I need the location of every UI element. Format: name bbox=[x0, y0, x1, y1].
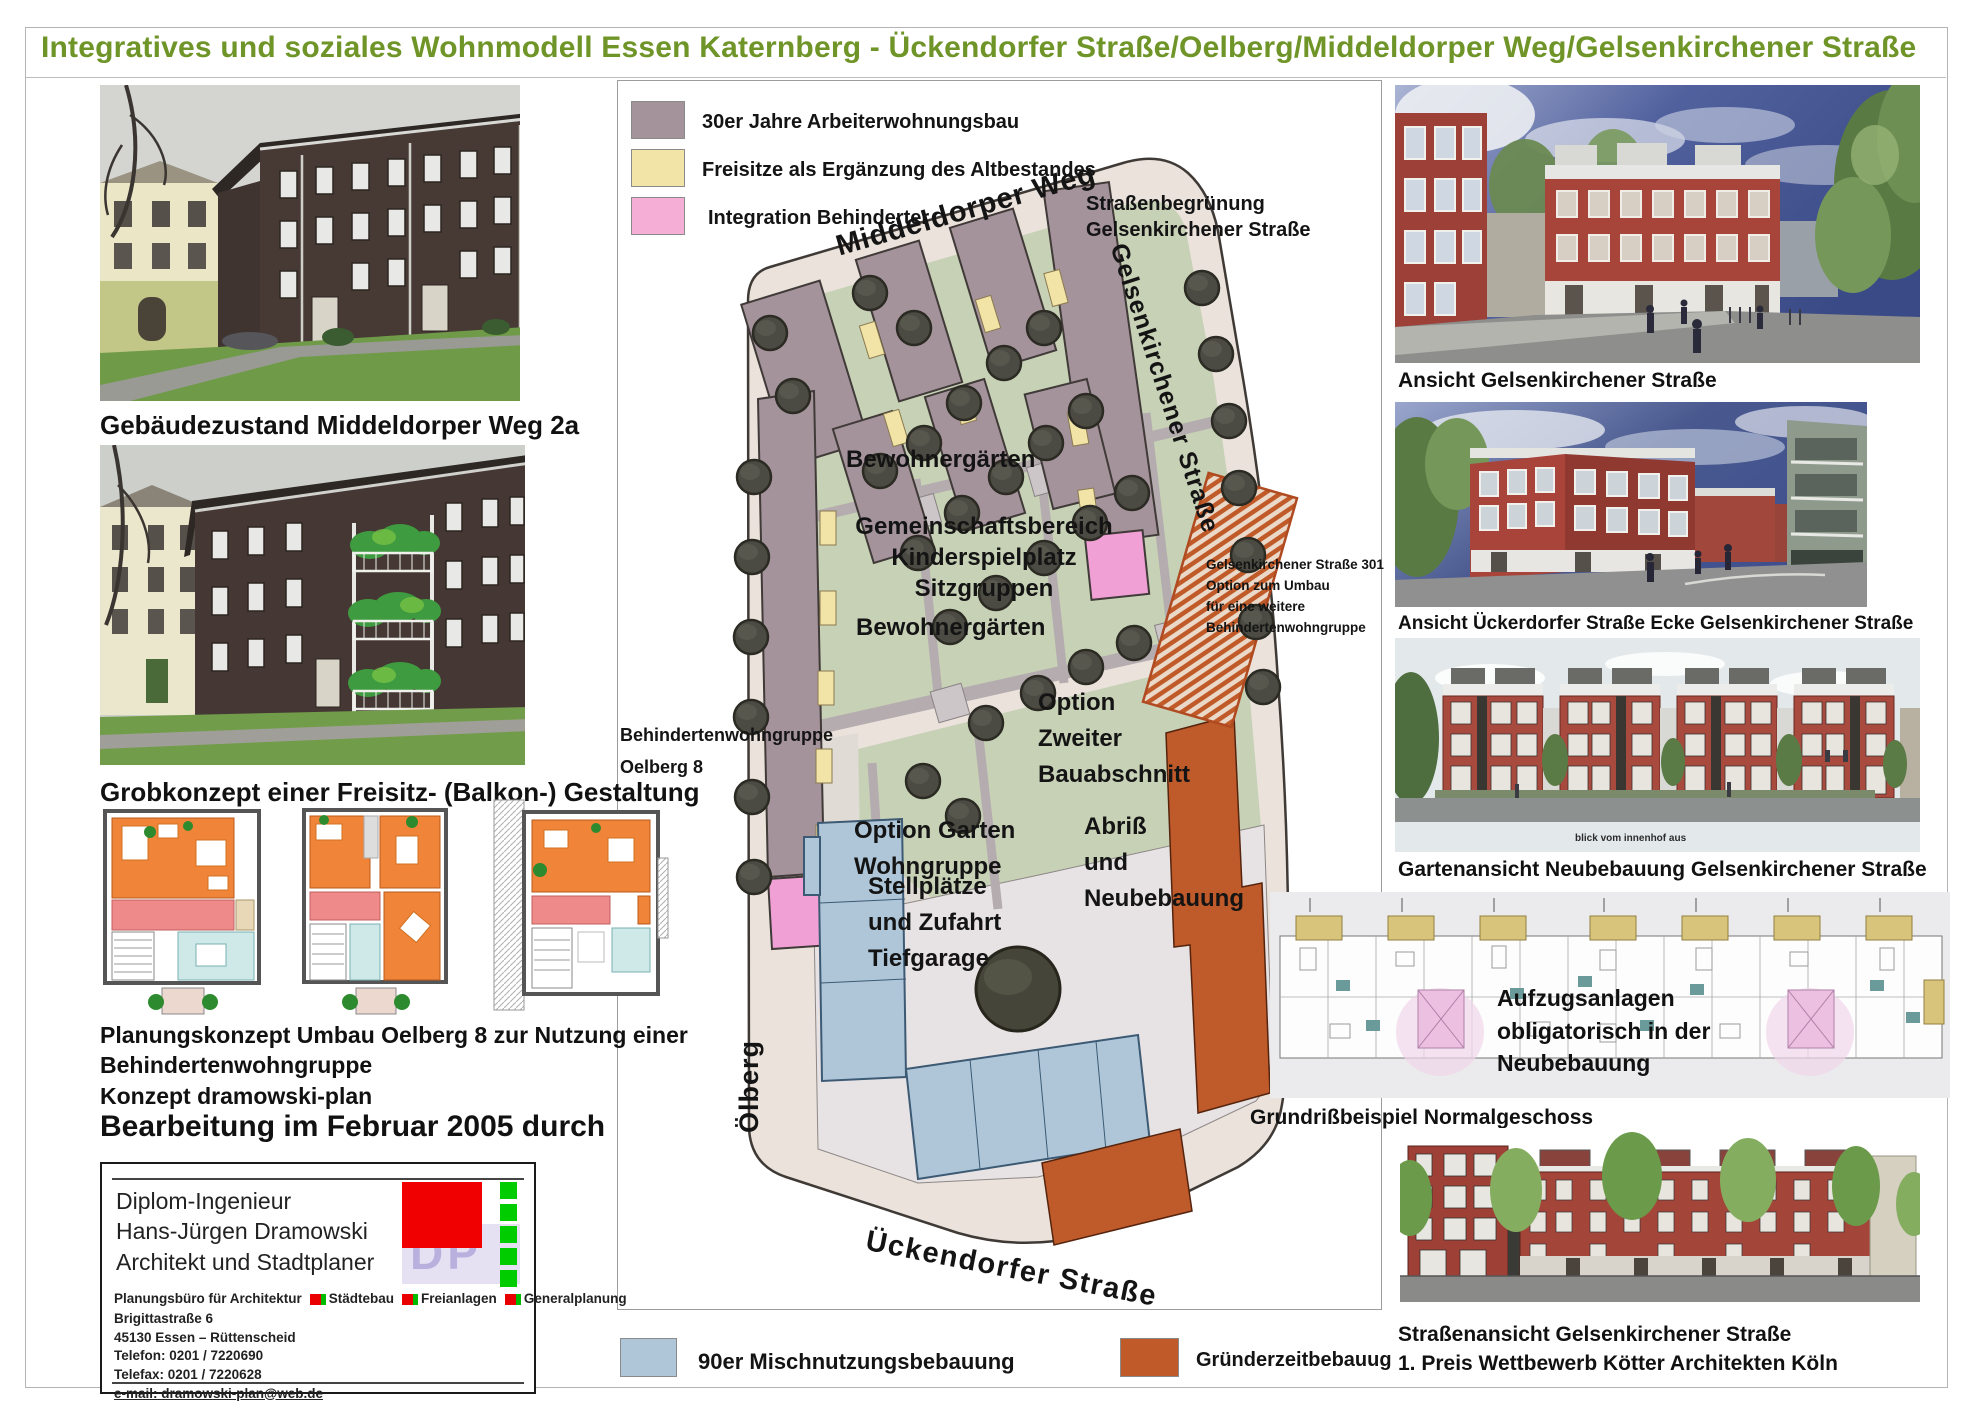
service-marker-icon bbox=[402, 1290, 418, 1309]
street-elevation bbox=[1400, 1128, 1920, 1304]
edit-note: Bearbeitung im Februar 2005 durch bbox=[100, 1110, 605, 1144]
service-marker-icon bbox=[505, 1290, 521, 1309]
floorplan-oelberg-eg bbox=[100, 806, 265, 1018]
service-marker-icon bbox=[310, 1290, 326, 1309]
garden-elevation bbox=[1395, 638, 1920, 852]
right-caption-4: Grundrißbeispiel Normalgeschoss bbox=[1250, 1106, 1593, 1130]
main-row bbox=[1520, 1150, 1870, 1278]
label-gelsenkirchener-301: Gelsenkirchener Straße 301 Option zum Um… bbox=[1206, 555, 1384, 639]
legend-swatch-integration bbox=[631, 197, 685, 235]
right-caption-3: Gartenansicht Neubebauung Gelsenkirchene… bbox=[1398, 858, 1927, 882]
center-block bbox=[1545, 143, 1780, 317]
dp-logo-green-squares bbox=[500, 1182, 518, 1286]
photo1-caption: Gebäudezustand Middeldorper Weg 2a bbox=[100, 410, 579, 441]
floorplan-oelberg-og bbox=[300, 806, 452, 1018]
page-title: Integratives und soziales Wohnmodell Ess… bbox=[41, 31, 1951, 65]
label-bewohnergaerten-1: Bewohnergärten bbox=[846, 443, 1035, 477]
dp-logo-red-square bbox=[402, 1182, 482, 1248]
title-divider bbox=[25, 77, 1946, 78]
legend-label-90er: 90er Mischnutzungsbebauung bbox=[698, 1346, 1015, 1377]
label-behindertenwohngruppe-oelberg: BehindertenwohngruppeOelberg 8 bbox=[620, 719, 833, 784]
infobox-services: Planungsbüro für ArchitekturStädtebauFre… bbox=[114, 1290, 627, 1309]
legend-swatch-30er bbox=[631, 101, 685, 139]
green-balcony-tower bbox=[348, 515, 441, 721]
rendering-gelsenkirchener bbox=[1395, 85, 1920, 363]
planning-text: Planungskonzept Umbau Oelberg 8 zur Nutz… bbox=[100, 1020, 688, 1111]
garden-note: blick vom innenhof aus bbox=[1575, 832, 1686, 846]
label-abriss: AbrißundNeubebauung bbox=[1084, 809, 1244, 917]
corner-building bbox=[1470, 448, 1695, 580]
floorplan-oelberg-dg bbox=[492, 798, 670, 1026]
photo-gebaeudezustand bbox=[100, 85, 520, 401]
lift-note: Aufzugsanlagen obligatorisch in der Neub… bbox=[1497, 982, 1710, 1080]
infobox-top-rule bbox=[112, 1178, 524, 1180]
label-gemeinschaftsbereich: Gemeinschaftsbereich Kinderspielplatz Si… bbox=[844, 511, 1124, 605]
legend-swatch-90er bbox=[620, 1338, 677, 1377]
poster-page: Integratives und soziales Wohnmodell Ess… bbox=[0, 0, 1975, 1417]
main-building bbox=[212, 113, 520, 355]
photo-grobkonzept bbox=[100, 445, 525, 765]
legend-swatch-freisitze bbox=[631, 149, 685, 187]
label-option-zweiter: OptionZweiterBauabschnitt bbox=[1038, 685, 1190, 793]
right-caption-5: Straßenansicht Gelsenkirchener Straße 1.… bbox=[1398, 1320, 1838, 1379]
architect-infobox: Diplom-Ingenieur Hans-Jürgen Dramowski A… bbox=[100, 1162, 536, 1394]
street-oelberg: Ölberg bbox=[730, 1040, 768, 1133]
infobox-bottom-rule bbox=[112, 1382, 524, 1384]
label-bewohnergaerten-2: Bewohnergärten bbox=[856, 611, 1045, 645]
legend-label-gruenderzeit: Gründerzeitbebauug bbox=[1196, 1346, 1392, 1374]
label-stellplaetze: Stellplätzeund ZufahrtTiefgarage bbox=[868, 869, 1001, 977]
background-building bbox=[100, 161, 218, 353]
legend-swatch-gruenderzeit bbox=[1120, 1338, 1179, 1377]
rendering-ecke bbox=[1395, 402, 1867, 607]
infobox-address: Brigittastraße 6 45130 Essen – Rüttensch… bbox=[114, 1310, 323, 1403]
right-caption-2: Ansicht Ückerdorfer Straße Ecke Gelsenki… bbox=[1398, 613, 1913, 635]
dp-logo: DP bbox=[402, 1182, 520, 1286]
right-caption-1: Ansicht Gelsenkirchener Straße bbox=[1398, 369, 1717, 393]
left-tower bbox=[1395, 113, 1487, 327]
legend-label-30er: 30er Jahre Arbeiterwohnungsbau bbox=[702, 108, 1019, 136]
label-strassenbegruenung: StraßenbegrünungGelsenkirchener Straße bbox=[1086, 191, 1311, 243]
architect-name: Diplom-Ingenieur Hans-Jürgen Dramowski A… bbox=[116, 1186, 374, 1277]
right-building bbox=[1787, 420, 1867, 582]
